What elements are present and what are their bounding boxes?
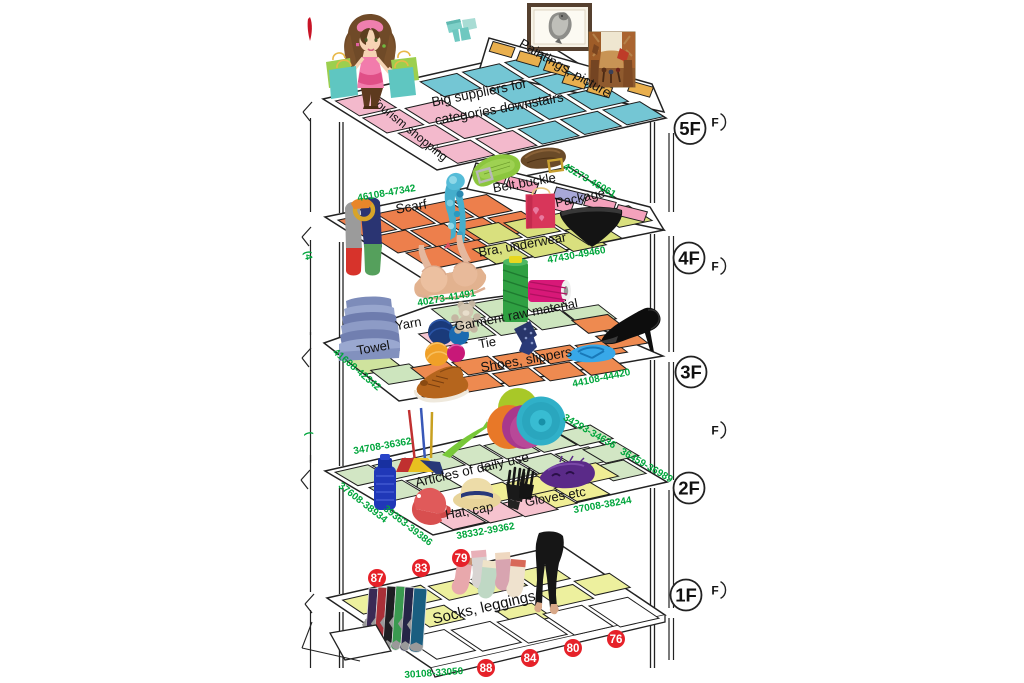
svg-text:83: 83 bbox=[415, 563, 428, 575]
svg-text:F: F bbox=[711, 260, 718, 274]
svg-text:5F: 5F bbox=[679, 118, 701, 139]
svg-text:80: 80 bbox=[567, 643, 580, 655]
svg-text:84: 84 bbox=[524, 653, 537, 665]
svg-text:F: F bbox=[711, 424, 718, 438]
svg-text:76: 76 bbox=[610, 634, 623, 646]
svg-text:F: F bbox=[711, 584, 718, 598]
svg-text:79: 79 bbox=[455, 553, 468, 565]
svg-text:F: F bbox=[711, 116, 718, 130]
svg-text:Tie: Tie bbox=[477, 334, 497, 352]
svg-text:87: 87 bbox=[371, 573, 384, 585]
svg-text:88: 88 bbox=[480, 663, 493, 675]
svg-text:2F: 2F bbox=[678, 478, 700, 499]
svg-text:3F: 3F bbox=[680, 362, 702, 383]
svg-text:1F: 1F bbox=[675, 585, 697, 606]
svg-text:4F: 4F bbox=[678, 248, 700, 269]
